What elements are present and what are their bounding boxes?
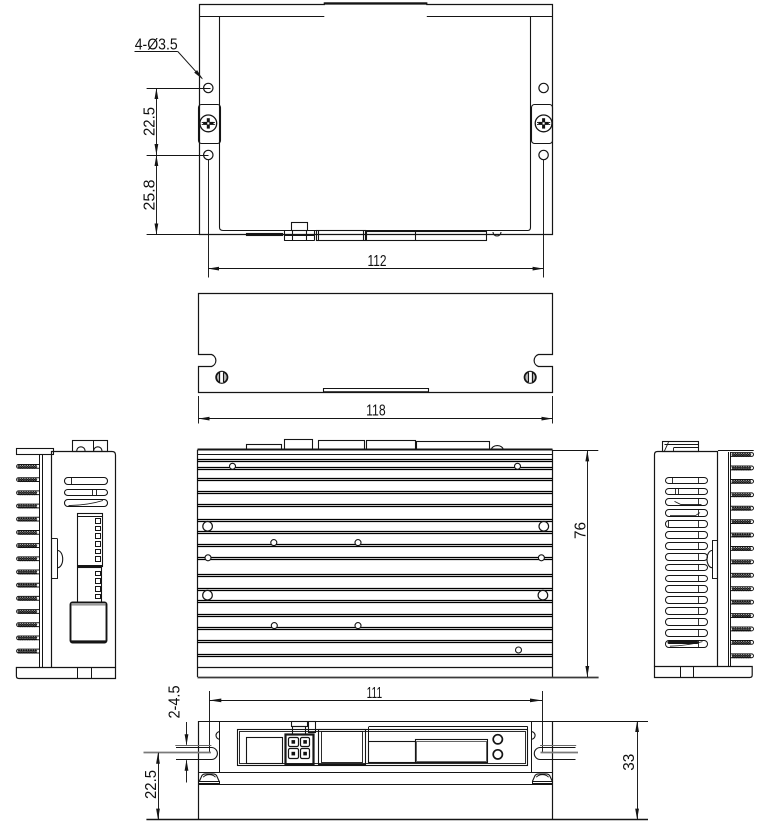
svg-text:111: 111 <box>367 685 383 702</box>
svg-text:25.8: 25.8 <box>142 179 159 210</box>
svg-text:112: 112 <box>368 253 387 270</box>
svg-text:22.5: 22.5 <box>143 770 160 799</box>
svg-text:76: 76 <box>572 522 589 539</box>
svg-text:118: 118 <box>366 402 386 419</box>
svg-text:4-Ø3.5: 4-Ø3.5 <box>135 37 178 54</box>
svg-text:33: 33 <box>621 754 638 771</box>
svg-text:2-4.5: 2-4.5 <box>166 685 183 718</box>
svg-text:22.5: 22.5 <box>142 107 159 136</box>
